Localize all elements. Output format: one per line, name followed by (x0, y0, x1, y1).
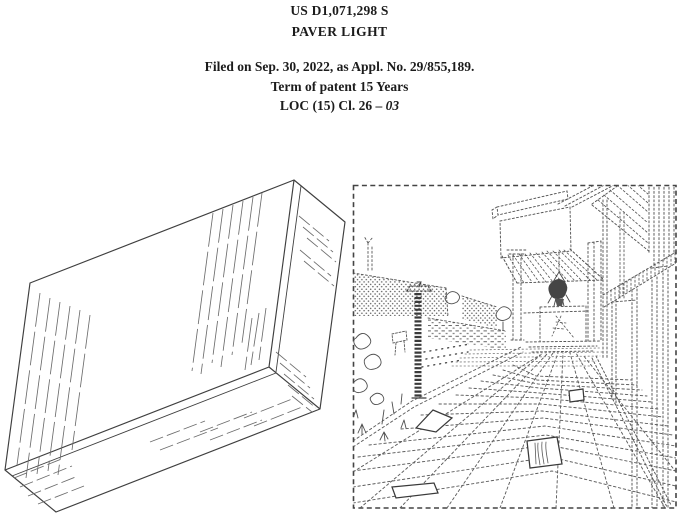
patent-header: US D1,071,298 S PAVER LIGHT Filed on Sep… (0, 2, 679, 116)
term-line: Term of patent 15 Years (0, 77, 679, 97)
patent-front-page: US D1,071,298 S PAVER LIGHT Filed on Sep… (0, 0, 679, 518)
patent-meta: Filed on Sep. 30, 2022, as Appl. No. 29/… (0, 57, 679, 116)
patent-number: US D1,071,298 S (0, 2, 679, 19)
loc-prefix: LOC (15) Cl. 26 – (280, 98, 386, 113)
figure-environmental-walkway-view (346, 178, 679, 512)
right-building (592, 182, 676, 508)
hedge-and-garden (353, 236, 506, 350)
front-face-hatching (17, 193, 266, 478)
side-face-hatching (14, 216, 336, 504)
patent-title: PAVER LIGHT (0, 23, 679, 40)
filed-line: Filed on Sep. 30, 2022, as Appl. No. 29/… (0, 57, 679, 77)
loc-class: 03 (386, 98, 400, 113)
garden-sign (392, 331, 407, 355)
loc-line: LOC (15) Cl. 26 – 03 (0, 96, 679, 116)
figure-paver-light-perspective (0, 160, 355, 518)
porch-structure (492, 182, 618, 352)
paver-light-outline (5, 180, 345, 512)
